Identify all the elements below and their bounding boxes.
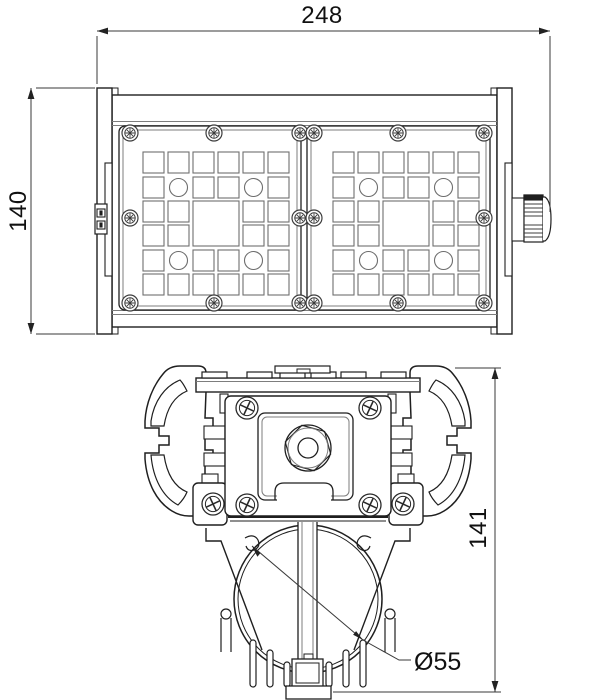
led-panel-right [307, 126, 490, 310]
center-column [298, 522, 317, 659]
floodlight-technical-drawing: 248 140 [0, 0, 603, 700]
led-panel-left [119, 126, 301, 310]
dim-arrow-top [28, 88, 35, 99]
dim-arrow-top [492, 368, 499, 379]
dim-side-height-label: 141 [465, 507, 492, 549]
front-view [95, 88, 551, 334]
dim-width-label: 248 [301, 2, 343, 29]
dim-arrow-bottom [492, 681, 499, 692]
dim-arrow-left [97, 28, 108, 35]
bracket-screw [236, 397, 258, 419]
bracket-screw [359, 397, 381, 419]
dim-arrow-right [539, 28, 550, 35]
mounting-bracket [225, 396, 391, 516]
technical-drawing-page: 248 140 [0, 0, 603, 700]
center-boss [285, 425, 331, 471]
dim-diameter-label: Ø55 [414, 648, 461, 676]
dim-front-height: 140 [5, 88, 95, 334]
dim-front-height-label: 140 [5, 190, 32, 232]
bracket-screw [359, 494, 381, 516]
dim-arrow-bottom [28, 323, 35, 334]
cable-gland [505, 163, 551, 276]
mounting-rail [196, 366, 420, 392]
bracket-screw [236, 494, 258, 516]
